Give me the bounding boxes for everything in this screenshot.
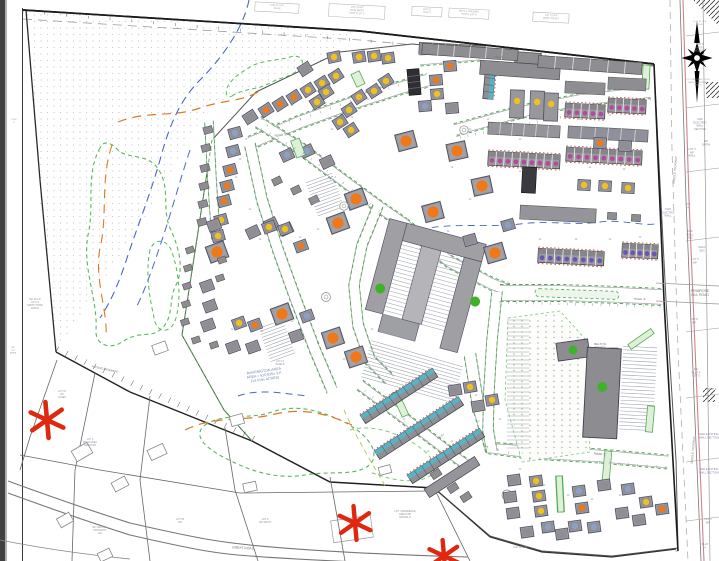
- svg-text:LOT 4 N/F STATE OF R.I.: LOT 4 N/F STATE OF R.I.: [685, 78, 711, 81]
- svg-text:S 82 11 02 W: S 82 11 02 W: [513, 546, 528, 549]
- svg-text:N/F: N/F: [692, 320, 697, 324]
- svg-text:LOT 9: LOT 9: [692, 374, 700, 378]
- svg-text:AREA: AREA: [10, 352, 16, 355]
- svg-text:HILL ROAD: HILL ROAD: [691, 293, 709, 297]
- svg-text:SEC: SEC: [687, 236, 693, 240]
- svg-text:ROAD 'A': ROAD 'A': [634, 297, 646, 301]
- svg-text:ALLEY: ALLEY: [495, 55, 504, 60]
- svg-text:N 41 22 18 E: N 41 22 18 E: [694, 21, 707, 23]
- svg-text:JONES: JONES: [58, 396, 66, 399]
- svg-text:434.62: 434.62: [273, 7, 281, 10]
- svg-text:PARCEL B: PARCEL B: [399, 516, 411, 519]
- svg-text:WALL SECTION: WALL SECTION: [699, 470, 719, 474]
- svg-text:N/F: N/F: [706, 520, 711, 524]
- svg-text:SEC: SEC: [699, 248, 705, 252]
- svg-text:ZONE R: ZONE R: [275, 363, 284, 366]
- svg-text:PLAT 4: PLAT 4: [694, 84, 702, 87]
- svg-text:HIGHWAY: HIGHWAY: [694, 49, 707, 53]
- svg-text:SMITH: SMITH: [702, 142, 710, 146]
- svg-text:WALL: WALL: [664, 214, 672, 218]
- svg-text:120.00: 120.00: [697, 24, 704, 26]
- svg-text:SECTION: SECTION: [694, 127, 706, 131]
- svg-text:GREAT RD: GREAT RD: [84, 444, 96, 447]
- svg-text:N/F SMITH: N/F SMITH: [259, 521, 271, 524]
- svg-text:N/F: N/F: [693, 260, 698, 264]
- svg-text:ALLEY: ALLEY: [206, 164, 210, 172]
- svg-text:ASSOC: ASSOC: [31, 307, 40, 310]
- svg-text:MIDDLE HIGHWAY: MIDDLE HIGHWAY: [688, 81, 708, 84]
- svg-text:LLC: LLC: [98, 532, 103, 535]
- svg-text:PLAT 4: PLAT 4: [423, 11, 432, 14]
- svg-text:PLAT 4: PLAT 4: [708, 387, 717, 391]
- svg-text:LOT: LOT: [11, 350, 16, 352]
- svg-text:WALL SECTION: WALL SECTION: [699, 435, 719, 439]
- svg-text:WALL: WALL: [688, 154, 696, 158]
- svg-text:N/F: N/F: [178, 521, 182, 524]
- svg-text:PLAT: PLAT: [11, 118, 17, 121]
